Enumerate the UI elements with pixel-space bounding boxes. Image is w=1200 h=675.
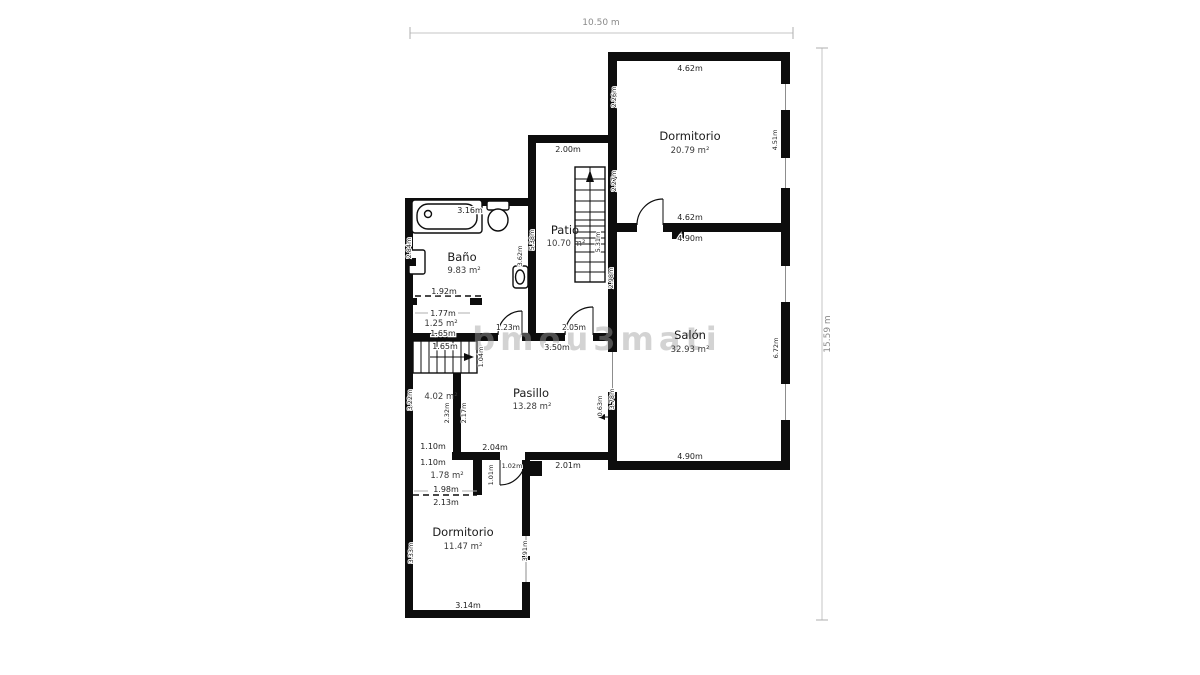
dim-label: 3.14m: [455, 601, 481, 610]
bathtub-icon: [412, 200, 482, 233]
dim-label: 2.13m: [433, 498, 459, 507]
dim-label: 3.22m: [406, 390, 414, 411]
room-dormitorio2: 1.10m 1.78 m² 1.98m 2.13m Dormitorio 11.…: [407, 458, 529, 610]
dim-label: 1.92m: [431, 287, 457, 296]
dim-label: 6.72m: [772, 338, 780, 359]
dim-label: 2.84m: [405, 238, 413, 259]
room-name: Patio: [551, 223, 579, 237]
dim-label: 2.32m: [443, 403, 451, 424]
dim-label: 1.98m: [433, 485, 459, 494]
dim-label: 3.78m: [608, 389, 616, 410]
dim-label: 0.63m: [596, 396, 604, 417]
room-area: 20.79 m²: [671, 146, 710, 156]
dim-label: 2.00m: [555, 145, 581, 154]
room-name: Dormitorio: [659, 129, 720, 143]
dim-label: 4.62m: [677, 64, 703, 73]
overall-width-dimension: 10.50 m: [410, 18, 793, 39]
closet-area: 1.78 m²: [430, 471, 463, 481]
window: [781, 84, 790, 110]
dim-label: 1.10m: [420, 442, 446, 451]
floorplan-page: 10.50 m 15.59 m: [0, 0, 1200, 675]
dim-label: 4.90m: [677, 452, 703, 461]
room-name: Dormitorio: [432, 525, 493, 539]
dim-label: 4.90m: [677, 234, 703, 243]
room-dormitorio1: Dormitorio 20.79 m² 4.62m 4.62m 2.26m 2.…: [610, 64, 779, 222]
dim-label: 2.27m: [610, 171, 618, 192]
dim-label: 1.04m: [477, 347, 485, 368]
room-area: 9.83 m²: [447, 266, 480, 276]
dim-label: 1.01m: [487, 465, 495, 486]
dim-label: 5.31m: [594, 232, 602, 253]
floorplan-drawing: 10.50 m 15.59 m: [0, 0, 1200, 675]
dim-label: 1.23m: [496, 323, 520, 332]
window: [781, 266, 790, 302]
patio-stairs-icon: [575, 167, 605, 282]
dim-label: 1.02m: [502, 462, 523, 470]
dim-label: 4.62m: [677, 213, 703, 222]
dim-label: 1.65m: [430, 329, 456, 338]
dim-label: 2.26m: [610, 87, 618, 108]
dim-label: 1.77m: [430, 309, 456, 318]
dim-label: 2.04m: [482, 443, 508, 452]
room-area: 4.02 m²: [424, 392, 457, 402]
toilet-icon: [487, 201, 509, 231]
door-arc: [637, 199, 663, 225]
dim-label: 3.91m: [521, 541, 529, 562]
dim-label: 1.10m: [420, 458, 446, 467]
dim-label: 3.16m: [457, 206, 483, 215]
room-name: Pasillo: [513, 386, 549, 400]
window: [781, 384, 790, 420]
closet-area: 1.25 m²: [424, 319, 457, 329]
room-name: Salón: [674, 328, 706, 342]
room-area: 11.47 m²: [444, 542, 483, 552]
room-area: 32.93 m²: [671, 345, 710, 355]
room-area: 10.70 m²: [547, 239, 586, 249]
room-area: 13.28 m²: [513, 402, 552, 412]
overall-width-label: 10.50 m: [582, 18, 619, 28]
dim-label: 3.62m: [516, 246, 524, 267]
overall-height-label: 15.59 m: [823, 315, 833, 352]
dim-label: 5.38m: [528, 230, 536, 251]
dim-label: 2.17m: [460, 403, 468, 424]
dim-label: 3.33m: [407, 543, 415, 564]
sink-icon: [513, 266, 528, 288]
dim-label: 1.65m: [432, 342, 458, 351]
window: [522, 560, 530, 582]
overall-height-dimension: 15.59 m: [816, 48, 833, 620]
dim-label: 2.98m: [607, 268, 615, 289]
dim-label: 3.50m: [544, 343, 570, 352]
dim-label: 4.51m: [771, 130, 779, 151]
window: [781, 158, 790, 188]
dim-label: 2.01m: [555, 461, 581, 470]
dim-label: 2.05m: [562, 323, 586, 332]
room-name: Baño: [447, 250, 476, 264]
